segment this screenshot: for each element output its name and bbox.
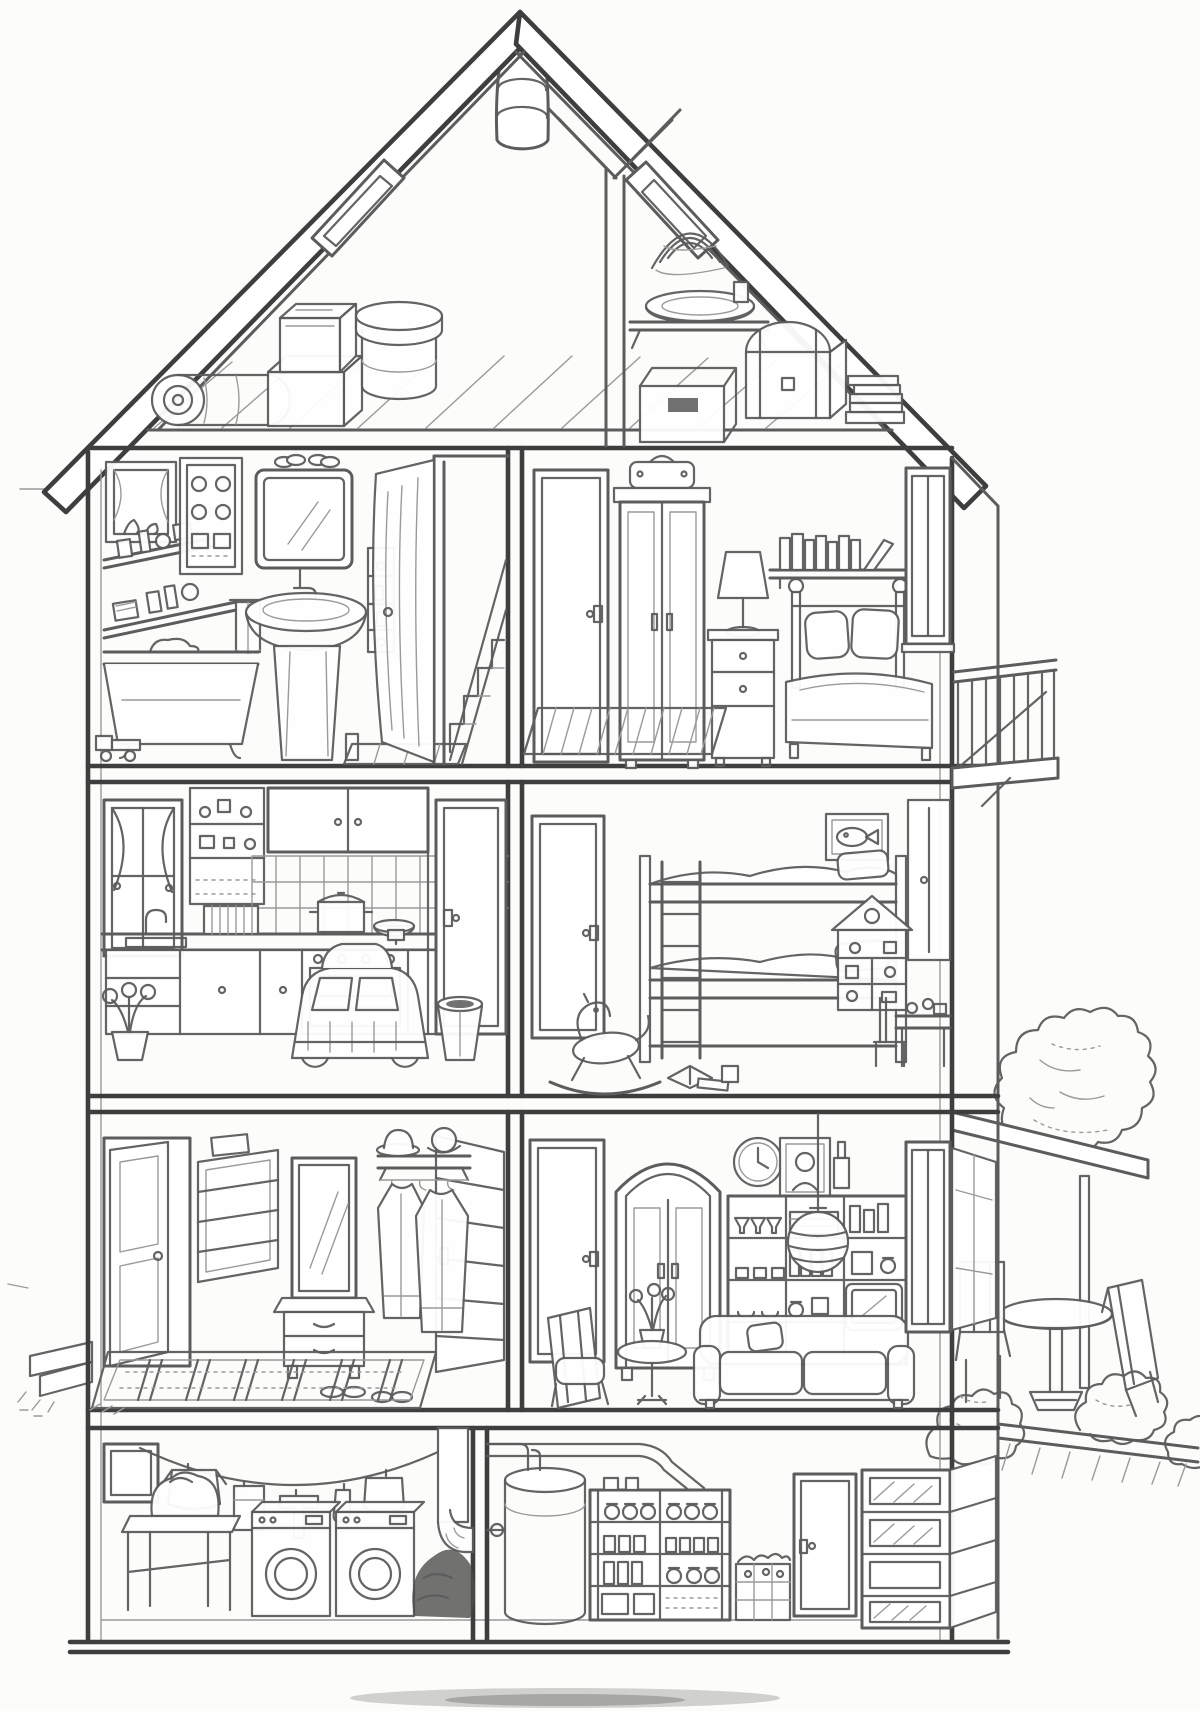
pantry-shelves: [590, 1478, 730, 1620]
pillow: [837, 850, 889, 880]
stray-marks: [8, 489, 86, 1288]
hanging-coats: [378, 1180, 468, 1332]
tall-cupboard: [190, 788, 264, 904]
door-frame: [434, 456, 508, 764]
bushes: [926, 1371, 1200, 1468]
washing-machine: [252, 1502, 340, 1616]
roof-right-slope: [516, 12, 986, 508]
entry-steps: [18, 1342, 92, 1416]
upper-cabinets: [268, 788, 428, 852]
front-door: [104, 1138, 190, 1366]
slippers-on-mirror: [275, 455, 339, 467]
pillow: [851, 609, 899, 659]
ground-base: [70, 1642, 1008, 1652]
water-heater: [487, 1444, 585, 1624]
air-duct: [438, 1428, 473, 1552]
potato-crate: [736, 1554, 790, 1620]
table-lamp: [718, 552, 768, 637]
wall-cabinet: [180, 458, 242, 574]
storage-door: [794, 1474, 856, 1616]
ground-shadow: [350, 1688, 780, 1708]
nightstand: [708, 630, 778, 766]
roof-left-slope: [44, 12, 524, 512]
room-dividers: [473, 448, 522, 1640]
tumble-dryer: [336, 1502, 424, 1616]
book-shelf: [770, 534, 906, 588]
hallway: [90, 1128, 504, 1414]
storage-room: [487, 1444, 996, 1628]
pedestal-sink: [246, 568, 366, 760]
living-window: [906, 1142, 996, 1332]
bedroom: [524, 456, 954, 768]
living-room: [530, 1114, 996, 1408]
dark-laundry-pile: [412, 1550, 475, 1618]
bathroom-window: [106, 462, 176, 542]
stair-landing: [373, 456, 508, 764]
kids-door: [532, 816, 604, 1038]
slatted-wall-rack: [198, 1134, 278, 1282]
plank-floor: [154, 356, 844, 428]
vase: [834, 1142, 849, 1188]
round-hatbox: [356, 302, 442, 399]
console-chest: [274, 1298, 374, 1378]
toy-truck: [96, 736, 140, 761]
mirror: [256, 470, 352, 568]
balcony: [952, 660, 1058, 806]
hall-mirror: [292, 1158, 356, 1298]
book-stacks: [846, 376, 904, 423]
dollhouse-illustration: [0, 0, 1200, 1711]
cooking-pot: [310, 893, 372, 932]
portrait-picture: [780, 1138, 830, 1198]
patio-chair-right: [1102, 1280, 1158, 1416]
wall-shelf-with-basin: [630, 282, 768, 348]
kitchen: [102, 788, 508, 1067]
suitcase: [630, 456, 694, 488]
hat: [428, 1128, 460, 1153]
books-on-floor: [668, 1066, 738, 1091]
crate-shelf: [862, 1456, 996, 1628]
line-art: [0, 0, 1200, 1711]
stacked-boxes: [268, 304, 362, 426]
waste-bin: [438, 997, 482, 1060]
kids-room: [532, 800, 950, 1094]
sofa: [694, 1316, 914, 1408]
open-crate: [640, 368, 736, 442]
wardrobe-kids: [908, 800, 950, 960]
bedroom-window: [902, 468, 954, 652]
open-door: [373, 460, 434, 762]
staircase: [450, 560, 506, 764]
wall-clock: [734, 1138, 782, 1186]
laundry-room: [104, 1428, 475, 1618]
hat: [377, 1130, 419, 1156]
patio-table: [1000, 1299, 1112, 1410]
pillow: [804, 611, 849, 660]
